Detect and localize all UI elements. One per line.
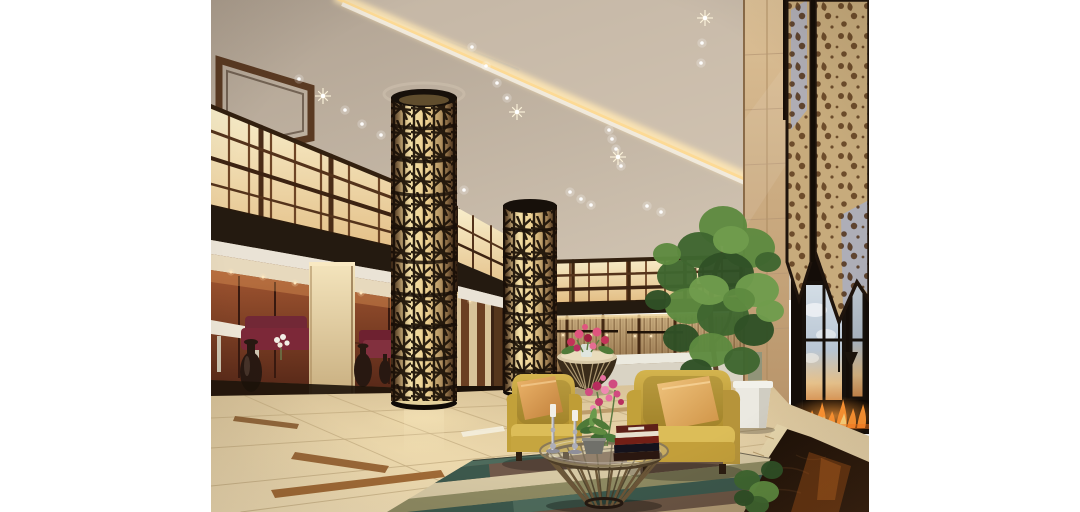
hotel-lobby-screenshot: [0, 0, 1080, 512]
vignette: [211, 0, 869, 512]
lobby-render-svg: [211, 0, 869, 512]
lobby-photo: [211, 0, 869, 512]
